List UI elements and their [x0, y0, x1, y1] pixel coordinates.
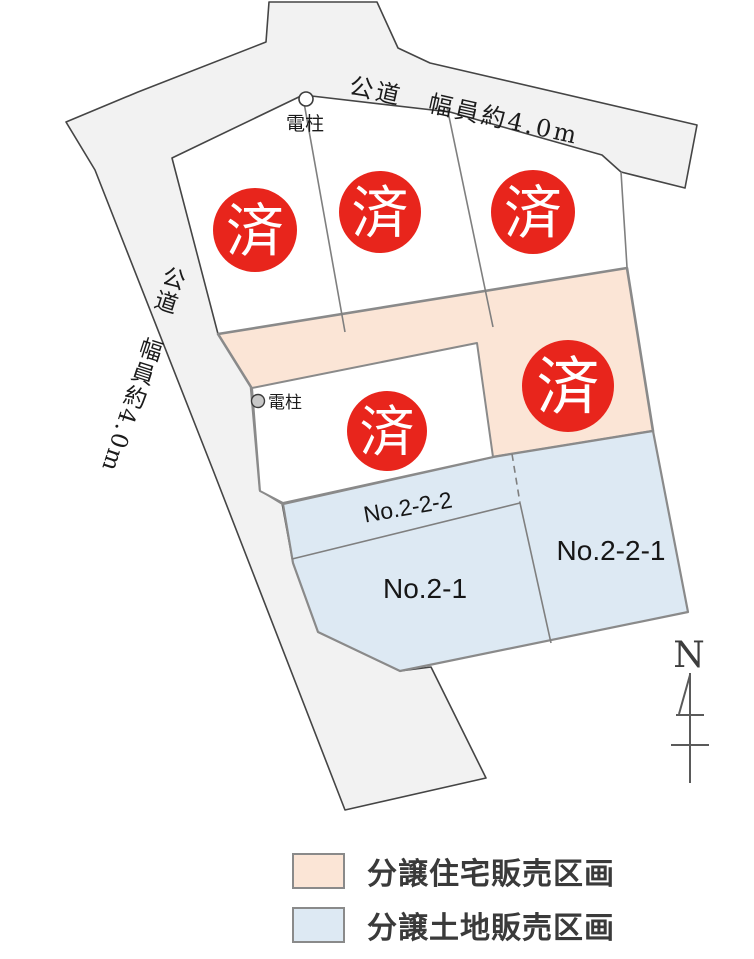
- svg-text:済: 済: [226, 197, 284, 265]
- svg-text:済: 済: [359, 400, 414, 464]
- svg-text:N: N: [673, 635, 705, 676]
- svg-text:済: 済: [504, 179, 562, 247]
- legend-item-housing: 分譲住宅販売区画: [292, 849, 615, 893]
- legend-label-land: 分譲土地販売区画: [367, 903, 615, 947]
- svg-text:済: 済: [352, 181, 409, 247]
- svg-text:電柱: 電柱: [268, 393, 302, 413]
- legend-label-housing: 分譲住宅販売区画: [367, 849, 615, 893]
- svg-text:電柱: 電柱: [286, 113, 324, 135]
- sold-badge: 済: [213, 188, 297, 272]
- legend-item-land: 分譲土地販売区画: [292, 903, 615, 947]
- legend-swatch-land: [292, 907, 345, 943]
- lot-label-no-2-1: No.2-1: [383, 573, 467, 604]
- site-plan-page: 済 済 済 済 済 電柱 電柱 No.2-2-2 No.2-1 N: [0, 0, 754, 959]
- sold-badge: 済: [522, 340, 614, 432]
- sold-badge: 済: [347, 391, 427, 471]
- legend-swatch-housing: [292, 853, 345, 889]
- lot-label-no-2-2-1: No.2-2-1: [557, 535, 666, 566]
- parcel-right-boundary-line: [621, 172, 627, 267]
- svg-text:済: 済: [537, 351, 600, 424]
- sold-badge: 済: [491, 170, 575, 254]
- sold-badge: 済: [339, 171, 421, 253]
- north-arrow-icon: N: [671, 635, 709, 783]
